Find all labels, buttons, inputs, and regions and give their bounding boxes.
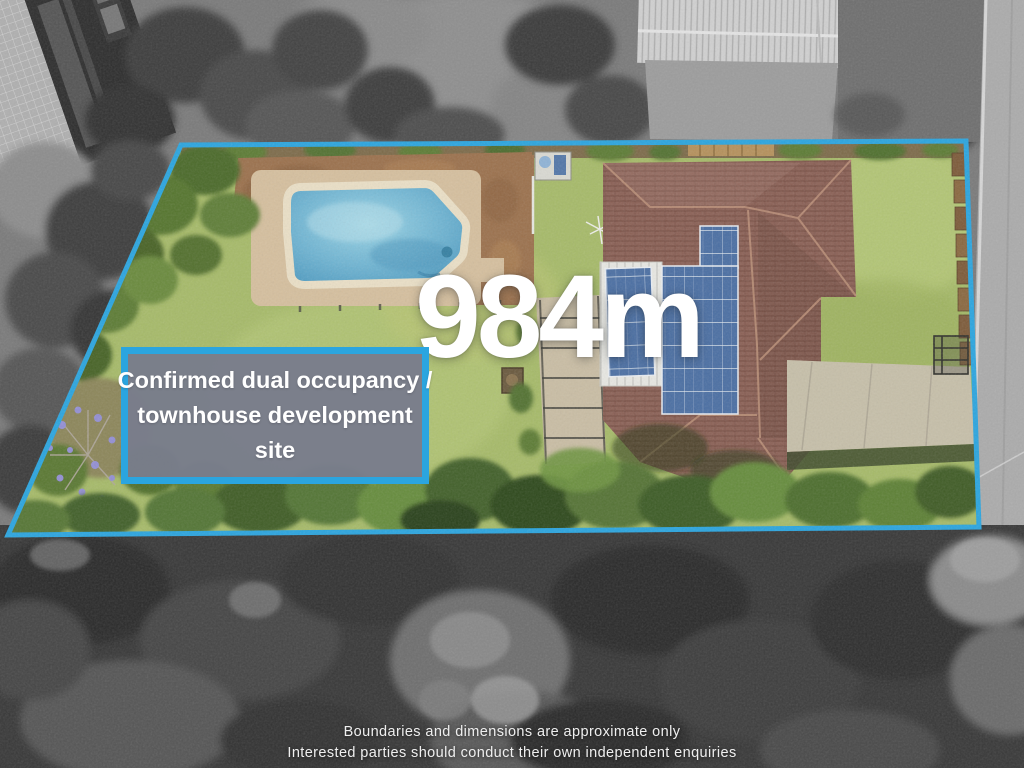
callout-line-1: Confirmed dual occupancy / [118, 363, 433, 398]
development-callout-box: Confirmed dual occupancy / townhouse dev… [121, 347, 429, 484]
callout-line-2: townhouse development [137, 398, 413, 433]
land-size-label: 984m [408, 258, 708, 376]
disclaimer-line-2: Interested parties should conduct their … [0, 743, 1024, 764]
disclaimer-line-1: Boundaries and dimensions are approximat… [0, 722, 1024, 743]
disclaimer: Boundaries and dimensions are approximat… [0, 722, 1024, 764]
callout-line-3: site [255, 433, 296, 468]
aerial-property-photo: 984m Confirmed dual occupancy / townhous… [0, 0, 1024, 768]
